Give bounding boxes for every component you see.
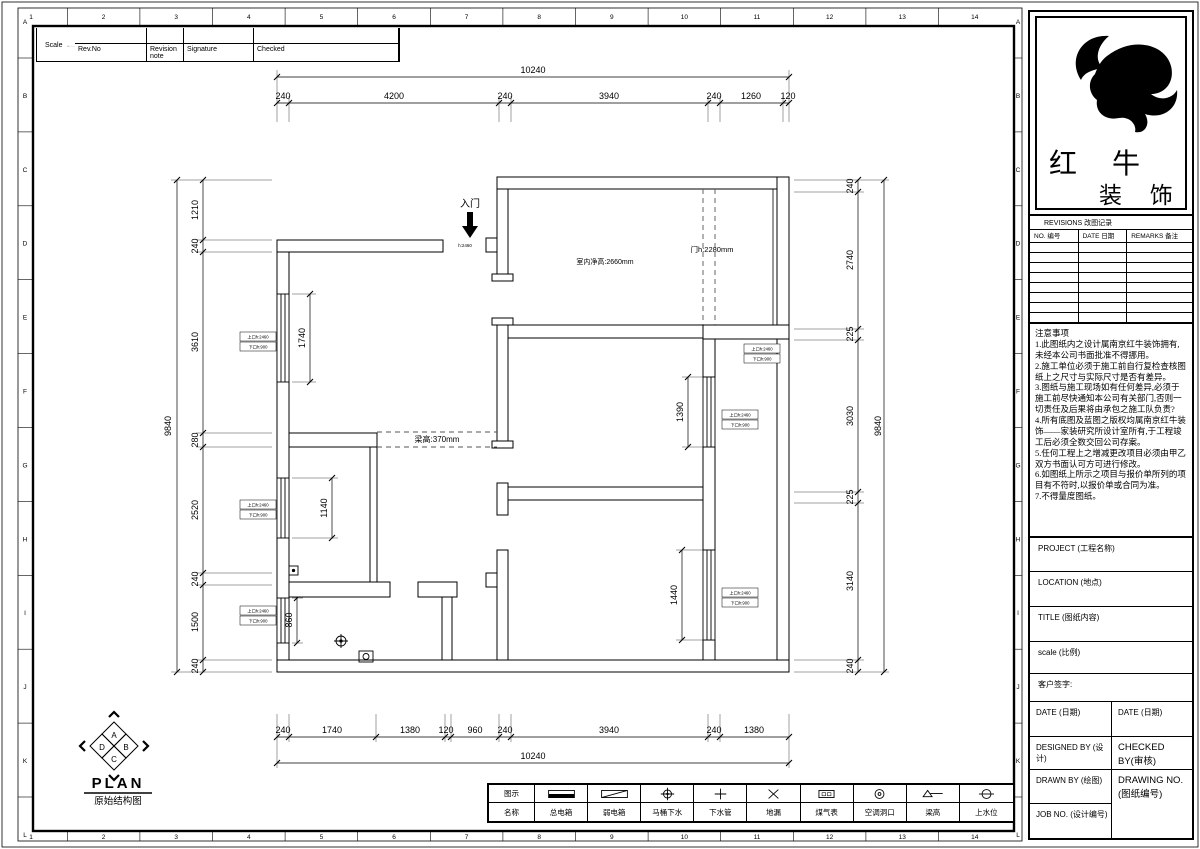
checked-by-field: CHECKED BY(审核) — [1111, 737, 1192, 769]
designed-by-field: DESIGNED BY (设计) — [1030, 737, 1111, 769]
dim-right-total: 9840 — [873, 416, 883, 436]
floor-plan: 入门 h:2460 室内净高:2660mm 门h:2280mm 梁高:370mm… — [36, 29, 1014, 831]
ruler-row-label: H — [23, 536, 28, 543]
main-power-box-icon — [537, 786, 586, 802]
entry-arrow-icon — [462, 212, 478, 238]
ruler-column-label: 10 — [681, 14, 689, 21]
ruler-row-label: C — [23, 167, 28, 174]
revision-empty-row — [1030, 292, 1192, 302]
note-item: 4.所有底图及蓝图之版权均属南京红牛装饰——家装研究所设计室所有,于工程竣工后必… — [1035, 415, 1187, 448]
legend-item-name: 煤气表 — [801, 803, 854, 821]
title-block-panel: 红 牛 装 饰 REVISIONS 改图记录 NO. 编号 DATE 日期 RE… — [1028, 10, 1194, 840]
dim: 240 — [845, 658, 855, 673]
revision-empty-row — [1030, 312, 1192, 322]
brand-name-2: 装 饰 — [1099, 176, 1184, 210]
company-logo-box: 红 牛 装 饰 — [1035, 16, 1187, 210]
job-no-field: JOB NO. (设计编号) — [1030, 803, 1111, 838]
window-label: 上口h:2460 下口h:900 — [240, 606, 276, 625]
balcony-opening-dashed — [703, 189, 715, 325]
date-right-field: DATE (日期) — [1111, 702, 1192, 736]
ruler-row-label: K — [1016, 758, 1021, 765]
ruler-column-label: 10 — [681, 834, 689, 841]
dim: 240 — [497, 725, 512, 735]
ruler-column-label: 1 — [29, 834, 33, 841]
legend-item-name: 空调洞口 — [854, 803, 907, 821]
drawing-sheet: { "sheet": {"bg": "#ffffff", "line_color… — [0, 0, 1200, 849]
window-right-bottom — [703, 550, 715, 640]
note-item: 3.图纸与施工现场如有任何差异,必须于施工前尽快通知本公司有关部门,否则一切责任… — [1035, 382, 1187, 415]
ruler-column-label: 6 — [392, 14, 396, 21]
dim: 280 — [190, 432, 200, 447]
ruler-column-label: 8 — [537, 834, 541, 841]
legend-item-name: 地漏 — [747, 803, 800, 821]
revisions-empty-rows — [1030, 242, 1192, 322]
ruler-column-label: 7 — [465, 834, 469, 841]
svg-text:上口h:2460: 上口h:2460 — [751, 346, 773, 352]
dim: 1740 — [297, 328, 307, 348]
ruler-column-label: 2 — [102, 14, 106, 21]
window-label: 上口h:2460 下口h:900 — [744, 344, 780, 363]
compass-w: D — [99, 743, 105, 752]
revision-empty-row — [1030, 252, 1192, 262]
interior-height-note: 室内净高:2660mm — [576, 257, 633, 266]
dim: 240 — [190, 658, 200, 673]
ruler-column-label: 13 — [899, 14, 907, 21]
water-supply-icon — [962, 786, 1011, 802]
svg-text:上口h:2460: 上口h:2460 — [247, 608, 269, 614]
ruler-column-label: 14 — [971, 834, 979, 841]
note-item: 5.任何工程上之增减更改项目必须由甲乙双方书面认可方可进行修改。 — [1035, 448, 1187, 470]
dim: 120 — [780, 91, 795, 101]
window-label-boxes: 上口h:2460 下口h:900 上口h:2460 下口h:900 上口h:24… — [240, 332, 780, 625]
dim: 1740 — [322, 725, 342, 735]
ruler-column-label: 12 — [826, 14, 834, 21]
dim: 240 — [190, 238, 200, 253]
project-field: PROJECT (工程名称) — [1030, 536, 1192, 571]
ruler-column-label: 11 — [754, 834, 761, 841]
drawn-by-field: DRAWN BY (绘图) — [1030, 770, 1111, 803]
dim-left-total: 9840 — [163, 416, 173, 436]
revision-empty-row — [1030, 282, 1192, 292]
legend-symbol-header: 图示 — [489, 785, 535, 803]
revision-empty-row — [1030, 302, 1192, 312]
dim: 2520 — [190, 500, 200, 520]
title-field: TITLE (图纸内容) — [1030, 606, 1192, 641]
legend-item-name: 上水位 — [960, 803, 1013, 821]
window-label: 上口h:2460 下口h:900 — [722, 588, 758, 607]
dim: 1390 — [675, 402, 685, 422]
ac-opening-icon — [855, 786, 904, 802]
ruler-row-label: K — [23, 758, 28, 765]
revision-empty-row — [1030, 272, 1192, 282]
dim: 240 — [275, 91, 290, 101]
dim: 120 — [438, 725, 453, 735]
legend-item-name: 马桶下水 — [641, 803, 694, 821]
ruler-column-label: 7 — [465, 14, 469, 21]
ruler-column-label: 8 — [537, 14, 541, 21]
ruler-row-label: F — [1016, 389, 1020, 396]
svg-text:上口h:2460: 上口h:2460 — [247, 334, 269, 340]
window-right-top — [703, 377, 715, 447]
dim-bottom-total: 10240 — [520, 751, 545, 761]
ruler-column-label: 11 — [754, 14, 761, 21]
dim: 1260 — [741, 91, 761, 101]
revisions-col-date: DATE 日期 — [1079, 230, 1128, 242]
dim: 240 — [190, 571, 200, 586]
entry-marker: 入门 h:2460 — [458, 197, 480, 248]
dim: 860 — [284, 612, 294, 627]
dim: 1500 — [190, 612, 200, 632]
ruler-column-label: 3 — [174, 834, 178, 841]
dim: 3140 — [845, 571, 855, 591]
location-field: LOCATION (地点) — [1030, 571, 1192, 606]
window-left-top — [277, 294, 289, 382]
bull-logo-icon — [1051, 24, 1179, 142]
svg-text:上口h:2460: 上口h:2460 — [247, 502, 269, 508]
compass-n: A — [111, 731, 117, 740]
drawing-no-field: DRAWING NO.(图纸编号) — [1111, 770, 1192, 838]
ruler-column-label: 13 — [899, 834, 907, 841]
dim: 3940 — [599, 91, 619, 101]
dim: 225 — [845, 326, 855, 341]
plan-title: PLAN — [92, 775, 145, 792]
ruler-row-label: L — [1016, 832, 1020, 839]
window-left-mid — [277, 478, 289, 538]
toilet-drain-icon — [643, 786, 692, 802]
ruler-column-label: 9 — [610, 14, 614, 21]
ruler-row-label: H — [1016, 536, 1021, 543]
revisions-title: REVISIONS 改图记录 — [1030, 216, 1192, 230]
ruler-row-label: A — [1016, 19, 1021, 26]
window-label: 上口h:2460 下口h:900 — [240, 332, 276, 351]
ruler-column-label: 14 — [971, 14, 979, 21]
entry-door-note: h:2460 — [458, 243, 472, 248]
ruler-row-label: A — [23, 19, 28, 26]
notes-title: 注意事项 — [1035, 328, 1187, 339]
dim: 2740 — [845, 250, 855, 270]
note-item: 6.如图纸上所示之项目与报价单所列的项目有不符时,以报价单或合同为准。 — [1035, 469, 1187, 491]
window-label: 上口h:2460 下口h:900 — [722, 410, 758, 429]
note-item: 2.施工单位必须于施工前自行复检查核图纸上之尺寸与实际尺寸是否有差异。 — [1035, 361, 1187, 383]
plan-subtitle: 原始结构图 — [94, 795, 142, 807]
legend-item-name: 梁高 — [907, 803, 960, 821]
ruler-column-label: 5 — [320, 834, 324, 841]
gas-meter-icon — [802, 786, 851, 802]
dim: 1440 — [669, 585, 679, 605]
dim: 240 — [497, 91, 512, 101]
compass-s: C — [111, 755, 117, 764]
window-label: 上口h:2460 下口h:900 — [240, 500, 276, 519]
entry-label: 入门 — [460, 197, 480, 210]
dim: 4200 — [384, 91, 404, 101]
door-height-note: 门h:2280mm — [691, 245, 734, 254]
svg-text:上口h:2460: 上口h:2460 — [729, 590, 751, 596]
dim: 3940 — [599, 725, 619, 735]
dashed-beam-and-opening — [377, 189, 715, 447]
ruler-row-label: F — [23, 389, 27, 396]
plan-annotations: 室内净高:2660mm 门h:2280mm 梁高:370mm — [415, 245, 734, 444]
ruler-row-label: D — [23, 241, 28, 248]
dim: 240 — [706, 91, 721, 101]
ruler-column-label: 12 — [826, 834, 834, 841]
revisions-table: REVISIONS 改图记录 NO. 编号 DATE 日期 REMARKS 备注 — [1030, 214, 1192, 322]
dim: 225 — [845, 489, 855, 504]
floor-drain-icon — [749, 786, 798, 802]
beam-height-note: 梁高:370mm — [415, 434, 460, 444]
ruler-column-label: 5 — [320, 14, 324, 21]
ruler-column-label: 1 — [29, 14, 33, 21]
dim: 1210 — [190, 200, 200, 220]
low-voltage-box-icon — [590, 786, 639, 802]
revisions-col-no: NO. 编号 — [1030, 230, 1079, 242]
fixtures — [289, 566, 373, 662]
compass-e: B — [123, 743, 128, 752]
dim: 1140 — [319, 498, 329, 517]
svg-text:上口h:2460: 上口h:2460 — [729, 412, 751, 418]
ruler-row-label: L — [23, 832, 27, 839]
drain-pipe-icon — [696, 786, 745, 802]
ruler-row-label: B — [1016, 93, 1020, 100]
ruler-row-label: I — [24, 610, 26, 617]
ruler-row-label: G — [22, 462, 27, 469]
legend-item-name: 下水管 — [694, 803, 747, 821]
dim: 240 — [275, 725, 290, 735]
ruler-column-label: 6 — [392, 834, 396, 841]
dim: 1380 — [400, 725, 420, 735]
dim: 240 — [845, 178, 855, 193]
revisions-col-remarks: REMARKS 备注 — [1127, 230, 1192, 242]
ruler-row-label: E — [23, 315, 28, 322]
note-item: 1.此图纸内之设计属南京红牛装饰拥有,未经本公司书面批准不得挪用。 — [1035, 339, 1187, 361]
ruler-column-label: 2 — [102, 834, 106, 841]
client-signature-field: 客户签字: — [1030, 673, 1192, 701]
dim: 3610 — [190, 332, 200, 352]
dim: 240 — [706, 725, 721, 735]
ruler-row-label: G — [1015, 462, 1020, 469]
ruler-row-label: C — [1016, 167, 1021, 174]
ruler-row-label: E — [1016, 315, 1021, 322]
ruler-row-label: I — [1017, 610, 1019, 617]
legend-item-name: 总电箱 — [535, 803, 588, 821]
ruler-row-label: J — [1016, 684, 1019, 691]
note-item: 7.不得量度图纸。 — [1035, 491, 1187, 502]
ruler-row-label: D — [1016, 241, 1021, 248]
compass: A B C D — [80, 712, 148, 780]
dim: 960 — [467, 725, 482, 735]
notes-section: 注意事项 1.此图纸内之设计属南京红牛装饰拥有,未经本公司书面批准不得挪用。 2… — [1030, 322, 1192, 536]
beam-height-icon — [908, 786, 957, 802]
ruler-column-label: 3 — [174, 14, 178, 21]
scale-field: scale (比例) — [1030, 641, 1192, 673]
date-left-field: DATE (日期) — [1030, 702, 1111, 736]
ruler-column-label: 4 — [247, 834, 251, 841]
ruler-row-label: J — [23, 684, 26, 691]
plan-title-block: PLAN 原始结构图 — [84, 775, 152, 807]
legend-name-header: 名称 — [489, 803, 535, 821]
dim: 3030 — [845, 406, 855, 426]
dimension-texts: 10240 240 4200 240 3940 240 1260 120 240… — [163, 65, 883, 761]
legend-item-name: 弱电箱 — [588, 803, 641, 821]
ruler-row-label: B — [23, 93, 27, 100]
revision-empty-row — [1030, 262, 1192, 272]
dim: 1380 — [744, 725, 764, 735]
ruler-column-label: 4 — [247, 14, 251, 21]
ruler-column-label: 9 — [610, 834, 614, 841]
legend-table: 图示 名称 总电箱 弱电箱 马桶下水 下水管 地漏 煤气表 空调洞口 梁高 上水… — [487, 783, 1015, 823]
revision-empty-row — [1030, 242, 1192, 252]
dim-top-total: 10240 — [520, 65, 545, 75]
